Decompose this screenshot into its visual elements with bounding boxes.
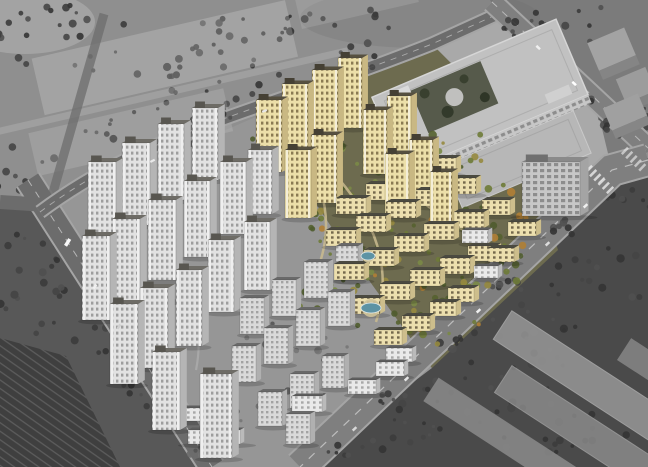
building-facade <box>220 162 246 234</box>
tree <box>386 26 391 31</box>
tree <box>407 439 413 445</box>
building-roof <box>440 255 475 258</box>
tree <box>329 252 332 255</box>
balcony-trim <box>185 181 187 257</box>
building-facade <box>336 198 366 214</box>
rendering-canvas <box>0 0 648 467</box>
tree <box>370 438 376 444</box>
tree <box>471 329 478 336</box>
tree <box>485 185 493 193</box>
tree <box>468 360 474 366</box>
building-roof <box>356 213 391 216</box>
tree <box>411 308 417 314</box>
tree <box>549 283 554 288</box>
tree <box>139 393 142 396</box>
balcony-trim <box>89 162 91 240</box>
building-side <box>416 199 421 218</box>
building-facade <box>348 380 376 394</box>
penthouse <box>179 264 189 271</box>
balcony-trim <box>279 100 281 172</box>
building-facade <box>184 181 210 257</box>
penthouse <box>151 194 162 201</box>
tree <box>13 174 18 179</box>
tree <box>347 43 354 50</box>
building-roof <box>290 371 319 374</box>
building-side <box>380 295 385 314</box>
building-roof <box>448 285 479 288</box>
building-facade <box>158 124 184 200</box>
tree <box>19 11 24 16</box>
building-facade <box>264 328 288 364</box>
tree <box>3 306 8 311</box>
penthouse <box>195 102 205 109</box>
tree <box>604 127 610 133</box>
tree <box>144 403 150 409</box>
balcony-trim <box>215 108 217 180</box>
building-roof <box>402 313 435 316</box>
building-facade <box>322 356 344 388</box>
building-facade <box>328 292 350 326</box>
balcony-trim <box>181 124 183 200</box>
tree <box>641 198 645 202</box>
tree <box>23 61 29 67</box>
tree <box>491 317 495 321</box>
balcony-trim <box>431 172 433 226</box>
tree <box>435 341 440 346</box>
building-facade <box>152 352 180 430</box>
building-roof <box>336 195 371 198</box>
building-roof <box>258 389 287 392</box>
tree <box>39 268 47 276</box>
building-roof <box>334 261 369 264</box>
balcony-trim <box>153 352 155 430</box>
tree <box>501 183 506 188</box>
building-cream-low <box>485 245 524 267</box>
tree <box>628 293 635 300</box>
building-facade <box>192 108 218 180</box>
tree <box>392 398 396 402</box>
balcony-trim <box>286 150 288 218</box>
building-side <box>180 348 187 430</box>
tree <box>577 9 581 13</box>
balcony-trim <box>193 108 195 180</box>
tree <box>391 310 397 316</box>
balcony-trim <box>305 84 307 156</box>
tree <box>52 321 56 325</box>
tree <box>49 264 54 269</box>
tree <box>2 168 10 176</box>
balcony-trim <box>149 200 151 280</box>
building-facade <box>376 362 404 376</box>
building-roof <box>374 327 407 330</box>
building-facade <box>122 143 150 225</box>
tree <box>319 225 325 231</box>
tree <box>75 11 78 14</box>
balcony-trim <box>267 222 269 290</box>
building-roof <box>474 264 502 267</box>
balcony-trim <box>245 222 247 290</box>
tree <box>96 350 101 355</box>
building-facade <box>258 392 282 426</box>
building-facade <box>363 110 387 174</box>
building-side <box>366 195 371 214</box>
penthouse <box>526 155 548 163</box>
tree <box>58 284 65 291</box>
tree <box>472 320 476 324</box>
balcony-trim <box>135 304 137 384</box>
tree <box>48 8 53 13</box>
tree <box>276 72 282 78</box>
tree <box>58 23 62 27</box>
tree <box>569 231 575 237</box>
tree <box>519 242 526 249</box>
building-facade <box>296 310 320 346</box>
building-side <box>386 213 391 232</box>
tree <box>629 187 635 193</box>
building-roof <box>348 378 380 381</box>
tree <box>16 267 23 274</box>
tree <box>393 418 396 421</box>
balcony-trim <box>308 150 310 218</box>
penthouse <box>390 90 399 96</box>
building-facade <box>334 264 364 280</box>
building-roof <box>380 281 415 284</box>
tree <box>455 342 459 346</box>
tree <box>594 264 600 270</box>
building-gray-tower <box>205 234 244 317</box>
building-roof <box>364 247 399 250</box>
tree <box>500 375 504 379</box>
tree <box>120 21 127 28</box>
tree <box>507 188 515 196</box>
tree <box>556 292 560 296</box>
tree <box>14 232 20 238</box>
tree <box>632 252 640 260</box>
building-gray-tower <box>106 298 148 389</box>
tree <box>25 16 31 22</box>
tree <box>432 425 435 428</box>
building-facade <box>148 200 176 280</box>
tree <box>69 20 77 28</box>
tree <box>572 256 579 263</box>
penthouse <box>251 144 260 151</box>
building-side <box>412 346 416 363</box>
building-side <box>430 313 435 331</box>
tree <box>551 318 555 322</box>
building-roof <box>304 259 333 262</box>
building-roof <box>424 221 459 224</box>
penthouse <box>366 104 375 110</box>
tree <box>468 158 474 164</box>
building-side <box>288 325 293 364</box>
building-facade <box>240 298 264 334</box>
penthouse <box>388 148 397 154</box>
tree <box>477 132 483 138</box>
building-side <box>337 132 343 204</box>
penthouse <box>125 137 136 144</box>
balcony-trim <box>173 200 175 280</box>
building-side <box>350 289 355 326</box>
building-facade <box>176 270 202 346</box>
building-side <box>322 394 326 413</box>
tree <box>15 54 23 62</box>
tree <box>371 13 378 20</box>
building-roof <box>232 343 261 346</box>
building-side <box>310 411 315 444</box>
tree <box>543 437 549 443</box>
tree <box>580 278 584 282</box>
penthouse <box>143 282 154 289</box>
tree <box>421 435 426 440</box>
tree <box>373 273 377 277</box>
tree <box>40 240 46 246</box>
tree <box>390 434 397 441</box>
tree <box>6 20 12 26</box>
building-white-low <box>344 378 386 399</box>
balcony-trim <box>107 236 109 320</box>
building-side <box>424 233 429 252</box>
tree <box>103 348 109 354</box>
tree <box>23 237 26 240</box>
balcony-trim <box>364 110 366 174</box>
building-roof <box>296 307 325 310</box>
balcony-trim <box>209 240 211 312</box>
tree <box>586 278 592 284</box>
building-roof <box>326 227 361 230</box>
balcony-trim <box>177 270 179 346</box>
building-roof <box>386 346 416 349</box>
tree <box>533 10 539 16</box>
tree <box>345 345 348 348</box>
building-roof <box>430 299 461 302</box>
penthouse <box>115 213 126 220</box>
tree <box>570 444 574 448</box>
balcony-trim <box>83 236 85 320</box>
tree <box>4 242 11 249</box>
penthouse <box>155 346 166 353</box>
tree <box>381 402 384 405</box>
tree <box>403 421 407 425</box>
tree <box>71 336 79 344</box>
building-side <box>402 327 407 345</box>
balcony-trim <box>177 352 179 430</box>
balcony-trim <box>137 219 139 303</box>
penthouse <box>315 64 325 70</box>
tree <box>459 337 464 342</box>
building-gray-tower <box>195 368 243 463</box>
building-roof <box>508 219 541 222</box>
tree <box>441 141 444 144</box>
penthouse <box>91 156 102 163</box>
tree <box>586 259 591 264</box>
tree <box>63 34 70 41</box>
tree <box>447 332 450 335</box>
building-side <box>404 360 408 377</box>
building-roof <box>488 245 519 248</box>
tree <box>396 406 403 413</box>
tree <box>250 136 255 141</box>
building-facade <box>82 236 110 320</box>
building-roof <box>240 295 269 298</box>
tree <box>428 433 431 436</box>
building-facade <box>208 240 234 312</box>
balcony-trim <box>269 150 271 214</box>
building-side <box>320 307 325 346</box>
building-side <box>510 197 515 215</box>
balcony-trim <box>111 304 113 384</box>
tree <box>503 269 509 275</box>
tree <box>560 325 568 333</box>
tree <box>38 321 45 328</box>
building-roof <box>394 233 429 236</box>
tree <box>385 390 392 397</box>
building-side <box>484 209 489 228</box>
tree <box>636 294 642 300</box>
penthouse <box>412 134 421 140</box>
tree <box>379 445 387 453</box>
building-facade <box>430 172 452 226</box>
tree <box>573 325 577 329</box>
building-side <box>440 267 445 286</box>
penthouse <box>211 234 221 241</box>
building-roof <box>264 325 293 328</box>
tree <box>587 23 592 28</box>
tree <box>550 228 557 235</box>
building-office <box>511 155 598 221</box>
tree <box>477 322 481 326</box>
tree <box>518 301 525 308</box>
penthouse <box>433 166 441 172</box>
building-roof <box>286 411 315 414</box>
balcony-trim <box>199 270 201 346</box>
balcony-trim <box>359 58 361 128</box>
tree <box>355 162 359 166</box>
building-side <box>488 228 492 244</box>
tree <box>495 409 500 414</box>
balcony-trim <box>159 124 161 200</box>
penthouse <box>85 230 96 237</box>
tree <box>335 451 339 455</box>
building-gray-tower <box>148 346 190 435</box>
tree <box>249 91 255 97</box>
tree <box>616 254 624 262</box>
building-facade <box>244 222 270 290</box>
balcony-trim <box>449 172 451 226</box>
building-facade <box>286 414 310 444</box>
balcony-trim <box>221 162 223 234</box>
aerial-rendering <box>0 0 648 467</box>
tree <box>501 26 506 31</box>
building-facade <box>292 396 322 412</box>
tree <box>606 246 611 251</box>
building-side <box>376 378 380 395</box>
building-side <box>240 428 244 445</box>
tree <box>334 442 341 449</box>
building-facade <box>304 262 328 298</box>
penthouse <box>223 156 233 163</box>
penthouse <box>247 216 257 223</box>
tree <box>360 445 364 449</box>
tree <box>40 279 48 287</box>
building-cream-tower <box>282 144 321 223</box>
building-side <box>272 146 279 214</box>
tree <box>449 345 457 353</box>
penthouse <box>187 175 197 182</box>
tree <box>327 450 331 454</box>
tree <box>33 331 39 337</box>
tree <box>318 240 322 244</box>
building-side <box>364 261 369 280</box>
penthouse <box>161 118 171 125</box>
tree <box>54 257 60 263</box>
building-facade <box>200 374 232 458</box>
building-gray-tower <box>173 264 212 351</box>
tree <box>10 291 18 299</box>
tree <box>239 419 242 422</box>
building-roof <box>454 209 489 212</box>
building-roof <box>272 277 301 280</box>
tree <box>479 159 484 164</box>
tree <box>598 5 603 10</box>
balcony-trim <box>334 135 336 203</box>
tree <box>526 310 530 314</box>
penthouse <box>341 52 350 58</box>
balcony-trim <box>201 374 203 458</box>
building-roof <box>350 295 385 298</box>
building-side <box>138 300 145 384</box>
tree <box>555 262 562 269</box>
building-facade <box>272 280 296 316</box>
building-facade <box>110 304 138 384</box>
penthouse <box>113 298 124 305</box>
tree <box>228 116 232 120</box>
building-side <box>454 221 459 240</box>
swimming-pool <box>361 303 381 313</box>
building-side <box>536 219 541 236</box>
tree <box>332 23 337 28</box>
building-side <box>232 370 239 458</box>
tree <box>510 29 515 34</box>
building-side <box>311 147 317 219</box>
tree <box>598 284 606 292</box>
tree <box>345 452 351 458</box>
tree <box>77 33 84 40</box>
building-roof <box>482 197 515 200</box>
tree <box>418 260 423 265</box>
building-roof <box>462 228 492 231</box>
tree <box>519 287 524 292</box>
tree <box>396 320 401 325</box>
tree <box>422 421 426 425</box>
building-roof <box>386 199 421 202</box>
tree <box>92 325 98 331</box>
building-roof <box>410 267 445 270</box>
building-side <box>202 266 209 346</box>
tree <box>463 376 467 380</box>
building-facade <box>462 230 488 243</box>
tree <box>511 18 519 26</box>
tree <box>127 390 133 396</box>
swimming-pool <box>361 252 375 260</box>
penthouse <box>314 129 324 135</box>
tree <box>9 143 17 151</box>
tree <box>505 17 511 23</box>
tree <box>24 33 30 39</box>
tree <box>619 196 625 202</box>
building-facade <box>488 248 514 262</box>
building-facade <box>522 162 580 216</box>
building-facade <box>374 330 402 345</box>
